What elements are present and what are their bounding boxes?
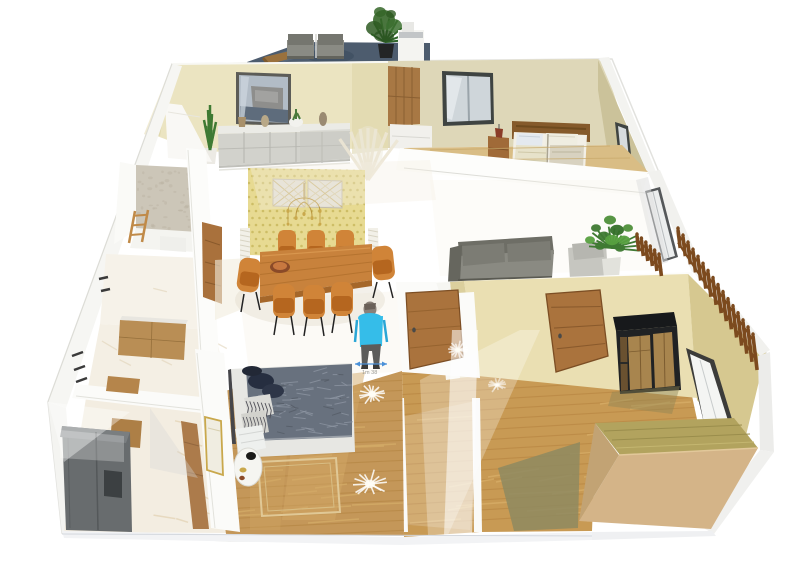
svg-text:1m 38: 1m 38 xyxy=(362,370,377,376)
